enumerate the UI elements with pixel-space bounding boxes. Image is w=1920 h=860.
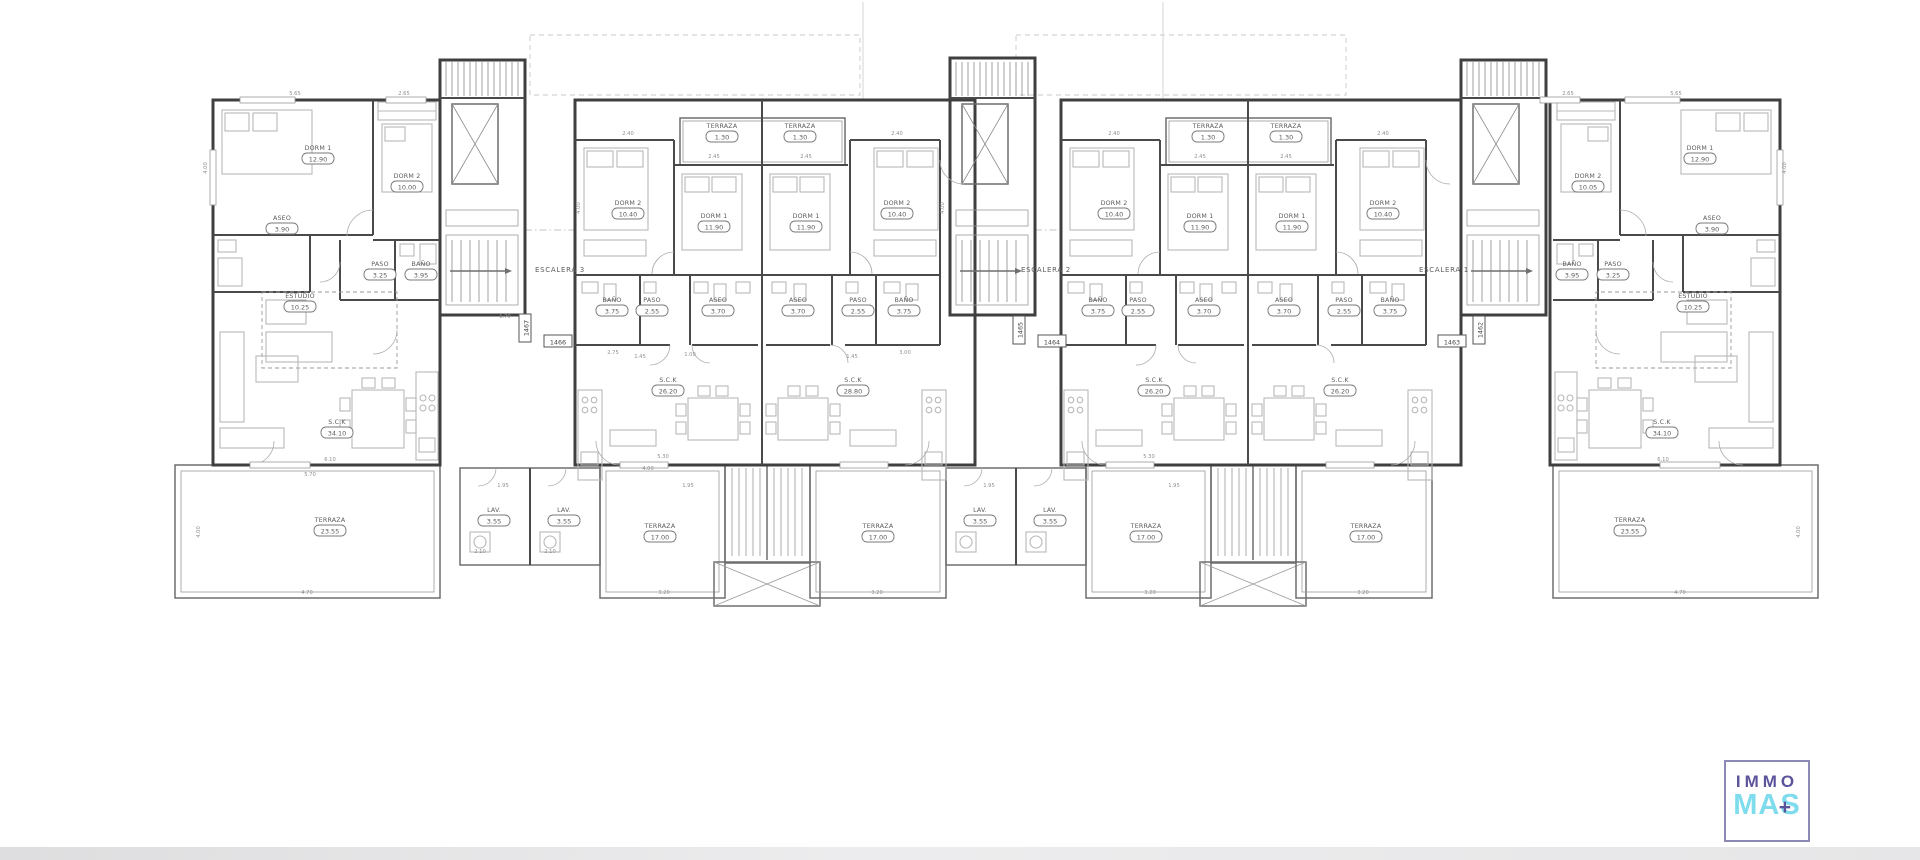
floor-plan-page: DORM 112.90DORM 210.00ASEO3.90PASO3.25BA… xyxy=(0,0,1920,860)
room-label-unit-b-terraza: TERRAZA1.30 xyxy=(784,123,816,142)
dining-table xyxy=(688,398,738,440)
room-label-unit-a-terraza: TERRAZA1.30 xyxy=(706,123,738,142)
room-label-end-left-dorm2: DORM 210.00 xyxy=(391,173,423,192)
room-label-end-right-dorm1: DORM 112.90 xyxy=(1684,145,1716,164)
svg-text:23.55: 23.55 xyxy=(321,528,340,536)
dimension-text: 4.00 xyxy=(196,526,202,538)
end-unit-interior-right xyxy=(1553,100,1780,465)
svg-text:1465: 1465 xyxy=(1017,322,1025,338)
desk xyxy=(266,332,332,362)
dimension-text: 5.70 xyxy=(304,472,316,478)
logo-mas-text: MAS + xyxy=(1726,790,1808,820)
dimension-text: 2.40 xyxy=(1377,131,1389,137)
stair-core xyxy=(440,62,525,305)
unit-pair-interior xyxy=(575,100,964,480)
room-label-unit-c-sck: S.C.K26.20 xyxy=(1138,377,1170,396)
room-label-unit-c-aseo: ASEO3.70 xyxy=(1188,297,1220,316)
stairwell-label: ESCALERA 2 xyxy=(1021,266,1071,274)
svg-text:TERRAZA: TERRAZA xyxy=(862,523,894,530)
svg-text:BAÑO: BAÑO xyxy=(602,295,621,304)
room-label-unit-a-lav: LAV.3.55 xyxy=(478,507,510,526)
svg-text:3.55: 3.55 xyxy=(557,518,571,526)
svg-text:2.55: 2.55 xyxy=(645,308,659,316)
sink xyxy=(581,452,598,465)
svg-text:1.30: 1.30 xyxy=(1201,134,1215,142)
svg-text:17.00: 17.00 xyxy=(869,534,888,542)
room-label-end-right-paso: PASO3.25 xyxy=(1597,261,1629,280)
dimension-text: 2.45 xyxy=(1194,154,1206,160)
room-label-unit-c-lav: LAV.3.55 xyxy=(964,507,996,526)
svg-text:2.55: 2.55 xyxy=(1131,308,1145,316)
svg-text:3.70: 3.70 xyxy=(1277,308,1291,316)
svg-text:PASO: PASO xyxy=(1335,297,1352,304)
dimension-text: 1.45 xyxy=(846,354,858,360)
svg-text:TERRAZA: TERRAZA xyxy=(784,123,816,130)
dimension-text: 2.45 xyxy=(708,154,720,160)
dimension-text: 4.00 xyxy=(576,202,582,214)
dimension-text: 2.40 xyxy=(891,131,903,137)
bed xyxy=(222,110,312,174)
room-label-unit-c-bao: BAÑO3.75 xyxy=(1082,295,1114,316)
svg-text:3.70: 3.70 xyxy=(711,308,725,316)
svg-text:10.40: 10.40 xyxy=(1374,211,1393,219)
room-label-unit-c-terraza: TERRAZA1.30 xyxy=(1192,123,1224,142)
svg-text:3.70: 3.70 xyxy=(1197,308,1211,316)
dimension-text: 4.00 xyxy=(940,202,946,214)
svg-text:10.40: 10.40 xyxy=(619,211,638,219)
dimension-text: 1.95 xyxy=(497,483,509,489)
dimension-text: 4.00 xyxy=(203,162,209,174)
room-label-unit-a-dorm1: DORM 111.90 xyxy=(698,213,730,232)
svg-text:1467: 1467 xyxy=(523,320,531,336)
dimension-text: 2.40 xyxy=(622,131,634,137)
room-label-end-left-terraza: TERRAZA23.55 xyxy=(314,517,346,536)
dimension-text: 6.10 xyxy=(324,457,336,463)
coffee-table xyxy=(256,356,298,382)
svg-text:26.20: 26.20 xyxy=(1331,388,1350,396)
svg-text:3.75: 3.75 xyxy=(1383,308,1397,316)
room-label-unit-d-dorm1: DORM 111.90 xyxy=(1276,213,1308,232)
room-label-unit-b-dorm1: DORM 111.90 xyxy=(790,213,822,232)
svg-text:DORM 1: DORM 1 xyxy=(1687,145,1714,152)
svg-text:BAÑO: BAÑO xyxy=(894,295,913,304)
dimension-text: 2.65 xyxy=(1562,91,1574,97)
estudio-partition xyxy=(262,292,397,368)
room-label-end-left-sck: S.C.K34.10 xyxy=(321,419,353,438)
dimension-text: 1.95 xyxy=(983,483,995,489)
room-label-end-left-bao: BAÑO3.95 xyxy=(405,259,437,280)
svg-text:1462: 1462 xyxy=(1477,322,1485,338)
room-label-unit-a-dorm2: DORM 210.40 xyxy=(612,200,644,219)
unit-number-tag: 1462 xyxy=(1473,316,1485,344)
sofa xyxy=(220,332,244,422)
room-label-unit-c-dorm2: DORM 210.40 xyxy=(1098,200,1130,219)
room-label-end-left-estudio: ESTUDIO10.25 xyxy=(284,293,316,312)
unit-number-tag: 1466 xyxy=(544,335,572,347)
svg-text:DORM 2: DORM 2 xyxy=(1575,173,1602,180)
svg-text:12.90: 12.90 xyxy=(1691,156,1710,164)
svg-text:TERRAZA: TERRAZA xyxy=(1130,523,1162,530)
dimension-text: 3.20 xyxy=(871,590,883,596)
room-label-unit-b-lav: LAV.3.55 xyxy=(548,507,580,526)
sofa xyxy=(850,430,896,446)
room-label-end-right-sck: S.C.K34.10 xyxy=(1646,419,1678,438)
svg-text:17.00: 17.00 xyxy=(1137,534,1156,542)
dimension-text: 3.00 xyxy=(899,350,911,356)
room-label-unit-d-sck: S.C.K26.20 xyxy=(1324,377,1356,396)
sink xyxy=(419,438,435,452)
svg-text:11.90: 11.90 xyxy=(705,224,724,232)
svg-text:S.C.K: S.C.K xyxy=(328,419,346,426)
svg-text:2.55: 2.55 xyxy=(851,308,865,316)
terrace-band xyxy=(175,465,1818,606)
svg-text:LAV.: LAV. xyxy=(557,507,571,514)
sofa xyxy=(610,430,656,446)
dimension-text: 4.70 xyxy=(1674,590,1686,596)
room-label-unit-d-paso: PASO2.55 xyxy=(1328,297,1360,316)
svg-text:ESTUDIO: ESTUDIO xyxy=(285,293,315,300)
unit-pair-interior-copy xyxy=(1061,100,1450,480)
svg-text:23.55: 23.55 xyxy=(1621,528,1640,536)
svg-text:3.95: 3.95 xyxy=(414,272,428,280)
svg-text:TERRAZA: TERRAZA xyxy=(314,517,346,524)
room-label-unit-a-sck: S.C.K26.20 xyxy=(652,377,684,396)
svg-text:DORM 1: DORM 1 xyxy=(701,213,728,220)
dimension-text: 4.00 xyxy=(1782,162,1788,174)
room-label-end-left-dorm1: DORM 112.90 xyxy=(302,145,334,164)
svg-text:10.05: 10.05 xyxy=(1579,184,1598,192)
dimension-text: 5.65 xyxy=(289,91,301,97)
svg-text:26.20: 26.20 xyxy=(659,388,678,396)
dimension-text: 3.20 xyxy=(1144,590,1156,596)
svg-text:28.80: 28.80 xyxy=(844,388,863,396)
svg-text:10.40: 10.40 xyxy=(888,211,907,219)
svg-text:3.55: 3.55 xyxy=(487,518,501,526)
svg-text:ASEO: ASEO xyxy=(1275,297,1293,304)
dimension-text: 3.20 xyxy=(1357,590,1369,596)
svg-text:34.10: 34.10 xyxy=(1653,430,1672,438)
svg-text:3.25: 3.25 xyxy=(373,272,387,280)
dimension-text: 2.45 xyxy=(1280,154,1292,160)
dimension-text: 2.10 xyxy=(474,549,486,555)
svg-text:3.55: 3.55 xyxy=(1043,518,1057,526)
svg-text:3.75: 3.75 xyxy=(897,308,911,316)
room-label-unit-d-bao: BAÑO3.75 xyxy=(1374,295,1406,316)
svg-text:PASO: PASO xyxy=(1129,297,1146,304)
svg-text:PASO: PASO xyxy=(371,261,388,268)
svg-text:ESTUDIO: ESTUDIO xyxy=(1678,293,1708,300)
svg-text:3.90: 3.90 xyxy=(1705,226,1719,234)
immo-mas-logo: IMMO MAS + xyxy=(1724,760,1810,842)
dimension-text: 1.45 xyxy=(634,354,646,360)
room-label-unit-b-sck: S.C.K28.80 xyxy=(837,377,869,396)
svg-text:DORM 2: DORM 2 xyxy=(615,200,642,207)
stair-core-1 xyxy=(1461,62,1546,305)
sink xyxy=(925,452,942,465)
svg-text:3.55: 3.55 xyxy=(973,518,987,526)
svg-text:12.90: 12.90 xyxy=(309,156,328,164)
svg-text:S.C.K: S.C.K xyxy=(1331,377,1349,384)
svg-text:17.00: 17.00 xyxy=(651,534,670,542)
dimension-text: 1.95 xyxy=(682,483,694,489)
svg-text:1.30: 1.30 xyxy=(715,134,729,142)
dimension-text: 5.30 xyxy=(1143,454,1155,460)
dimension-text: 2.45 xyxy=(800,154,812,160)
dining-table xyxy=(778,398,828,440)
room-label-unit-a-bao: BAÑO3.75 xyxy=(596,295,628,316)
wardrobe xyxy=(874,240,936,256)
dimension-text: 2.10 xyxy=(544,549,556,555)
dimension-text: 5.65 xyxy=(1670,91,1682,97)
svg-text:TERRAZA: TERRAZA xyxy=(706,123,738,130)
dimension-text: 2.65 xyxy=(398,91,410,97)
logo-plus-icon: + xyxy=(1779,793,1792,823)
svg-text:11.90: 11.90 xyxy=(1283,224,1302,232)
dimension-text: 2.40 xyxy=(1108,131,1120,137)
svg-text:DORM 1: DORM 1 xyxy=(305,145,332,152)
svg-text:1463: 1463 xyxy=(1444,339,1460,347)
svg-text:DORM 1: DORM 1 xyxy=(1187,213,1214,220)
svg-text:S.C.K: S.C.K xyxy=(844,377,862,384)
bottom-watermark-strip xyxy=(0,847,1920,860)
svg-text:3.95: 3.95 xyxy=(1565,272,1579,280)
terrace-left-large xyxy=(175,465,440,598)
dimension-text: 2.75 xyxy=(607,350,619,356)
svg-text:PASO: PASO xyxy=(849,297,866,304)
svg-text:10.00: 10.00 xyxy=(398,184,417,192)
svg-text:2.55: 2.55 xyxy=(1337,308,1351,316)
svg-text:BAÑO: BAÑO xyxy=(1562,259,1581,268)
wardrobe xyxy=(584,240,646,256)
unit-number-tag: 1464 xyxy=(1038,335,1066,347)
svg-text:ASEO: ASEO xyxy=(1703,215,1721,222)
svg-text:3.90: 3.90 xyxy=(275,226,289,234)
dimension-text: 4.70 xyxy=(301,590,313,596)
room-label-unit-d-lav: LAV.3.55 xyxy=(1034,507,1066,526)
svg-text:PASO: PASO xyxy=(1604,261,1621,268)
unit-number-tag: 1467 xyxy=(519,314,531,342)
svg-text:10.25: 10.25 xyxy=(291,304,310,312)
svg-text:BAÑO: BAÑO xyxy=(1380,295,1399,304)
svg-text:10.25: 10.25 xyxy=(1684,304,1703,312)
svg-text:BAÑO: BAÑO xyxy=(1088,295,1107,304)
svg-text:1.30: 1.30 xyxy=(793,134,807,142)
svg-text:ASEO: ASEO xyxy=(1195,297,1213,304)
stairwell-label: ESCALERA 1 xyxy=(1419,266,1469,274)
svg-text:ASEO: ASEO xyxy=(273,215,291,222)
svg-text:3.75: 3.75 xyxy=(605,308,619,316)
dimension-text: 4.00 xyxy=(1796,526,1802,538)
room-label-end-right-terraza: TERRAZA23.55 xyxy=(1614,517,1646,536)
room-label-end-right-aseo: ASEO3.90 xyxy=(1696,215,1728,234)
room-label-unit-b-terraza: TERRAZA17.00 xyxy=(862,523,894,542)
dimension-text: 3.20 xyxy=(658,590,670,596)
terrace-right-large xyxy=(1553,465,1818,598)
stairwell-label: ESCALERA 3 xyxy=(535,266,585,274)
room-label-unit-d-aseo: ASEO3.70 xyxy=(1268,297,1300,316)
room-label-unit-d-terraza: TERRAZA1.30 xyxy=(1270,123,1302,142)
dimension-text: 5.30 xyxy=(657,454,669,460)
unit-number-tag: 1465 xyxy=(1013,316,1025,344)
room-label-unit-b-dorm2: DORM 210.40 xyxy=(881,200,913,219)
svg-text:TERRAZA: TERRAZA xyxy=(1350,523,1382,530)
svg-text:3.25: 3.25 xyxy=(1606,272,1620,280)
svg-text:1464: 1464 xyxy=(1044,339,1060,347)
svg-text:TERRAZA: TERRAZA xyxy=(1614,517,1646,524)
svg-text:LAV.: LAV. xyxy=(487,507,501,514)
dimension-text: 1.00 xyxy=(684,352,696,358)
dimension-text: 6.10 xyxy=(1657,457,1669,463)
room-label-unit-c-terraza: TERRAZA17.00 xyxy=(1130,523,1162,542)
unit-number-tag: 1463 xyxy=(1438,335,1466,347)
room-label-end-right-estudio: ESTUDIO10.25 xyxy=(1677,293,1709,312)
room-label-unit-b-aseo: ASEO3.70 xyxy=(782,297,814,316)
room-label-unit-a-terraza: TERRAZA17.00 xyxy=(644,523,676,542)
room-label-end-left-paso: PASO3.25 xyxy=(364,261,396,280)
room-label-unit-a-aseo: ASEO3.70 xyxy=(702,297,734,316)
dimension-text: 1.70 xyxy=(499,314,511,320)
svg-text:34.10: 34.10 xyxy=(328,430,347,438)
room-label-end-right-bao: BAÑO3.95 xyxy=(1556,259,1588,280)
room-label-unit-b-bao: BAÑO3.75 xyxy=(888,295,920,316)
room-label-unit-d-dorm2: DORM 210.40 xyxy=(1367,200,1399,219)
svg-text:3.70: 3.70 xyxy=(791,308,805,316)
svg-text:DORM 2: DORM 2 xyxy=(884,200,911,207)
room-label-unit-b-paso: PASO2.55 xyxy=(842,297,874,316)
svg-text:ASEO: ASEO xyxy=(789,297,807,304)
dimension-text: 1.95 xyxy=(1168,483,1180,489)
svg-text:LAV.: LAV. xyxy=(1043,507,1057,514)
svg-text:S.C.K: S.C.K xyxy=(1145,377,1163,384)
svg-text:PASO: PASO xyxy=(643,297,660,304)
svg-text:1466: 1466 xyxy=(550,339,566,347)
svg-text:DORM 2: DORM 2 xyxy=(1101,200,1128,207)
svg-text:S.C.K: S.C.K xyxy=(659,377,677,384)
svg-text:LAV.: LAV. xyxy=(973,507,987,514)
room-label-end-left-aseo: ASEO3.90 xyxy=(266,215,298,234)
svg-text:1.30: 1.30 xyxy=(1279,134,1293,142)
svg-text:TERRAZA: TERRAZA xyxy=(644,523,676,530)
svg-text:TERRAZA: TERRAZA xyxy=(1192,123,1224,130)
svg-text:ASEO: ASEO xyxy=(709,297,727,304)
svg-text:DORM 1: DORM 1 xyxy=(793,213,820,220)
dining-table xyxy=(352,390,404,448)
svg-text:17.00: 17.00 xyxy=(1357,534,1376,542)
svg-text:S.C.K: S.C.K xyxy=(1653,419,1671,426)
room-label-end-right-dorm2: DORM 210.05 xyxy=(1572,173,1604,192)
svg-text:DORM 2: DORM 2 xyxy=(394,173,421,180)
svg-text:11.90: 11.90 xyxy=(797,224,816,232)
floor-plan-drawing: DORM 112.90DORM 210.00ASEO3.90PASO3.25BA… xyxy=(0,0,1920,860)
svg-text:DORM 1: DORM 1 xyxy=(1279,213,1306,220)
room-label-unit-d-terraza: TERRAZA17.00 xyxy=(1350,523,1382,542)
room-label-unit-c-dorm1: DORM 111.90 xyxy=(1184,213,1216,232)
outer-walls xyxy=(213,58,1780,465)
svg-text:TERRAZA: TERRAZA xyxy=(1270,123,1302,130)
dimension-text: 4.00 xyxy=(642,466,654,472)
svg-text:DORM 2: DORM 2 xyxy=(1370,200,1397,207)
svg-text:10.40: 10.40 xyxy=(1105,211,1124,219)
svg-text:BAÑO: BAÑO xyxy=(411,259,430,268)
svg-text:26.20: 26.20 xyxy=(1145,388,1164,396)
svg-text:3.75: 3.75 xyxy=(1091,308,1105,316)
svg-text:11.90: 11.90 xyxy=(1191,224,1210,232)
exterior-stair xyxy=(714,465,820,606)
